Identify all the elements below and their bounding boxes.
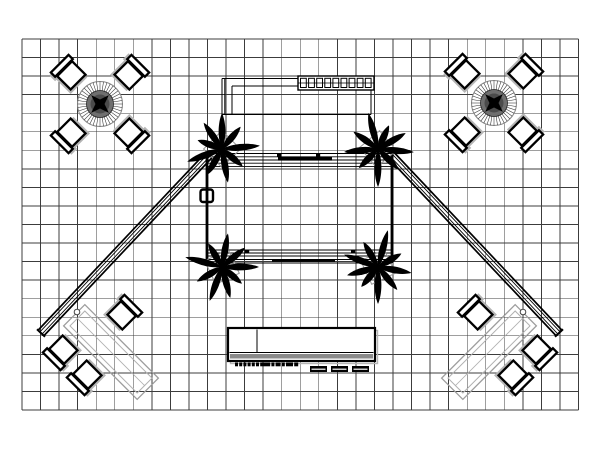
palm-plant xyxy=(174,222,268,313)
counter-stool-stripe xyxy=(312,369,326,370)
counter-label-mark xyxy=(282,363,285,367)
chair xyxy=(67,358,106,397)
counter-label-mark xyxy=(286,363,293,367)
truss-connector-node xyxy=(520,309,526,315)
chair xyxy=(504,52,543,91)
booth-mount-tick xyxy=(245,250,249,253)
counter-label-mark xyxy=(260,363,270,367)
counter-stool-stripe xyxy=(333,369,347,370)
shelf-unit xyxy=(298,76,374,90)
counter-label-mark xyxy=(276,363,281,367)
chair xyxy=(443,54,482,93)
counter-label-mark xyxy=(271,363,274,367)
counter-label-mark xyxy=(243,363,246,367)
counter-front-band xyxy=(230,354,373,359)
conference-set xyxy=(443,52,544,153)
conference-set xyxy=(49,53,150,154)
lounge-group xyxy=(43,293,159,399)
chair xyxy=(49,55,88,94)
booth-monitor-bar xyxy=(278,157,332,161)
counter-label-mark xyxy=(239,363,242,367)
counter-label-mark xyxy=(235,363,238,367)
chair xyxy=(110,53,149,92)
lounge-group xyxy=(442,293,558,399)
counter-label-mark xyxy=(294,363,298,367)
chair xyxy=(506,113,545,152)
chair xyxy=(51,116,90,155)
chair xyxy=(445,115,484,154)
chair xyxy=(112,114,151,153)
booth-mount-tick xyxy=(277,154,281,157)
chair xyxy=(103,293,142,332)
booth-right-edge xyxy=(391,154,394,264)
booth-bottom-bar xyxy=(272,260,335,262)
truss-connector-node xyxy=(74,309,80,315)
chair xyxy=(494,358,533,397)
reception-counter xyxy=(228,328,378,372)
counter-label-mark xyxy=(248,363,251,367)
chair xyxy=(458,293,497,332)
counter-stool-stripe xyxy=(354,369,368,370)
counter-label-mark xyxy=(252,363,255,367)
floor-plan-page xyxy=(0,0,600,450)
palm-plant xyxy=(341,110,417,190)
plant-trunk xyxy=(219,146,225,152)
booth-mount-tick xyxy=(351,250,355,253)
counter-label-mark xyxy=(256,363,259,367)
booth-mount-tick xyxy=(316,154,320,157)
booth-plan-drawing xyxy=(0,0,600,450)
